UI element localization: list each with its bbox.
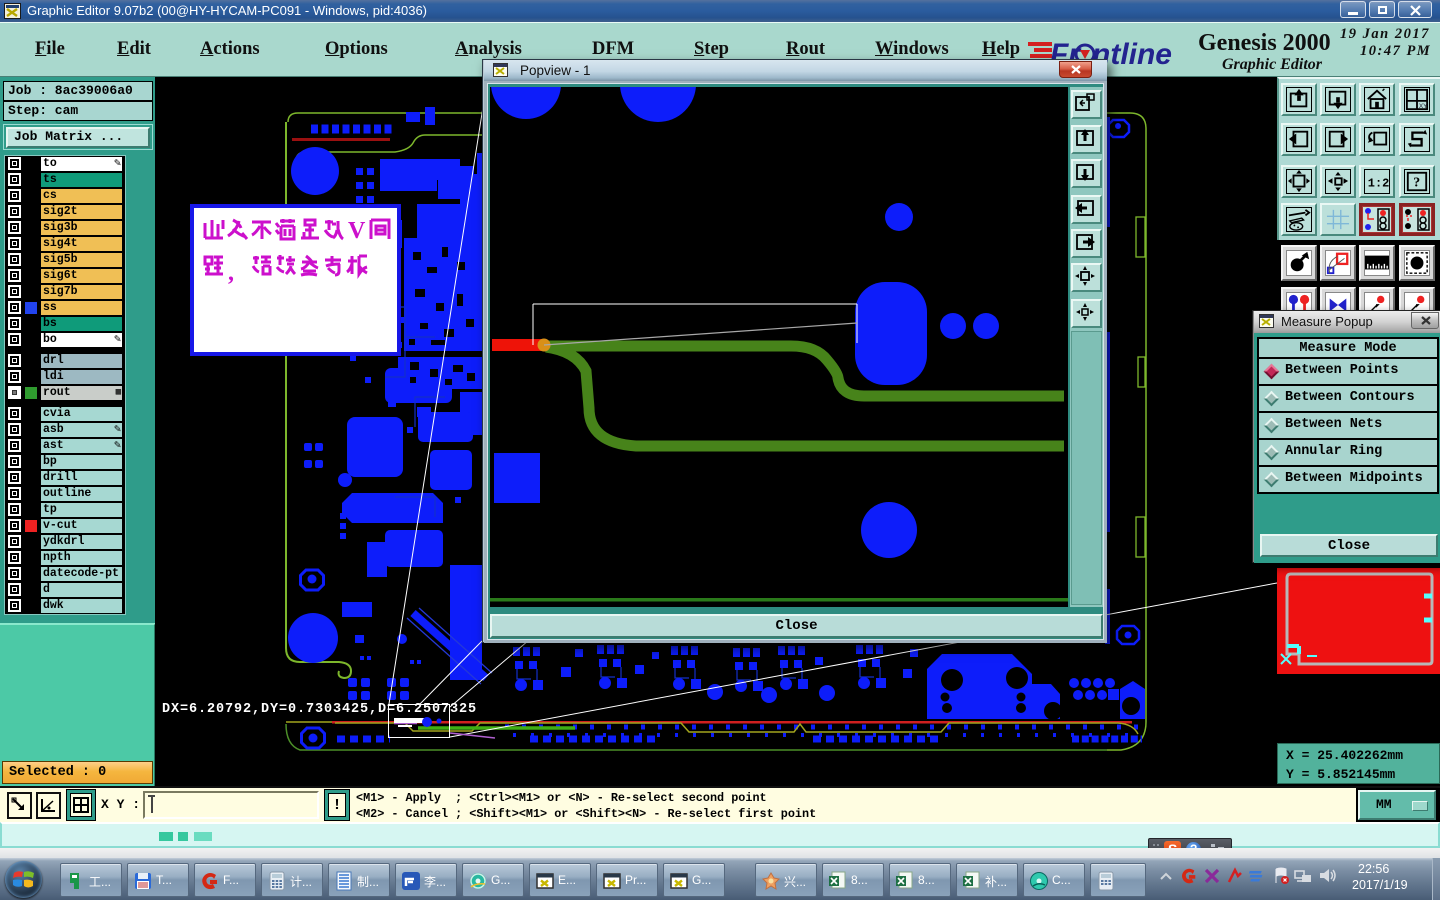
svg-text:?: ? [1413, 175, 1420, 190]
svg-text:1:2: 1:2 [1368, 177, 1390, 191]
svg-text:V: V [348, 218, 366, 244]
svg-text:XY: XY [1419, 103, 1428, 110]
svg-text:,: , [228, 260, 234, 286]
